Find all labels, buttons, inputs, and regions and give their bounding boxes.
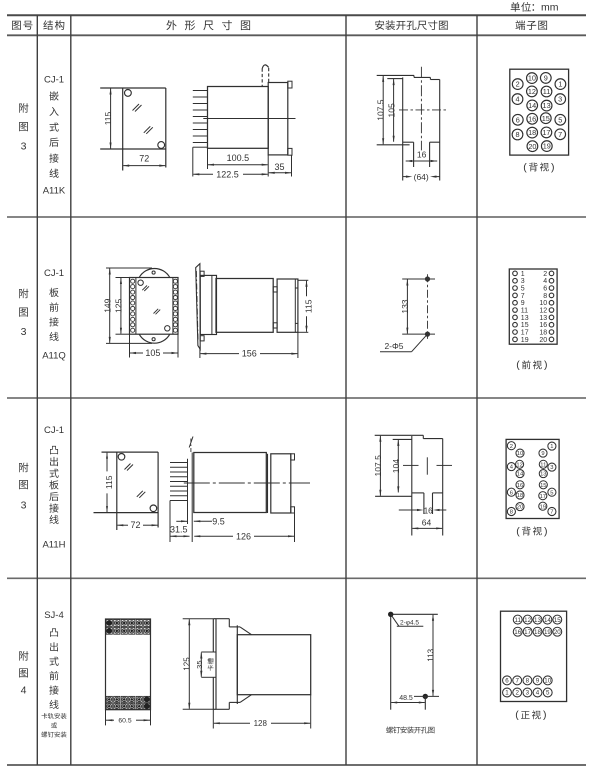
svg-text:A11Q: A11Q xyxy=(42,350,66,361)
svg-text:2: 2 xyxy=(510,444,513,450)
svg-text:8: 8 xyxy=(515,130,519,139)
svg-text:): ) xyxy=(544,359,548,371)
svg-text:SJ-4: SJ-4 xyxy=(44,610,64,621)
svg-text:1: 1 xyxy=(521,271,525,278)
svg-text:10: 10 xyxy=(517,451,523,457)
svg-text:17: 17 xyxy=(542,128,550,137)
svg-text:2-Φ5: 2-Φ5 xyxy=(384,341,403,351)
svg-text:113: 113 xyxy=(427,648,436,661)
svg-text:12: 12 xyxy=(528,87,536,96)
svg-text:125: 125 xyxy=(114,298,124,312)
svg-text:): ) xyxy=(551,161,555,173)
svg-text:3: 3 xyxy=(521,278,525,285)
svg-text:16: 16 xyxy=(514,629,521,636)
svg-text:18: 18 xyxy=(534,629,541,636)
svg-text:7: 7 xyxy=(515,678,519,685)
svg-text:156: 156 xyxy=(242,349,257,359)
svg-text:2: 2 xyxy=(515,690,519,697)
svg-text:11: 11 xyxy=(514,617,521,624)
svg-text:11: 11 xyxy=(543,87,551,96)
svg-text:(: ( xyxy=(523,161,527,173)
svg-text:125: 125 xyxy=(183,657,192,671)
svg-text:(: ( xyxy=(516,359,520,371)
svg-text:11: 11 xyxy=(540,462,546,468)
svg-text:): ) xyxy=(543,709,547,721)
svg-text:12: 12 xyxy=(539,308,547,315)
svg-text:19: 19 xyxy=(544,629,551,636)
svg-text:10: 10 xyxy=(539,300,547,307)
svg-text:1: 1 xyxy=(550,444,553,450)
svg-text:6: 6 xyxy=(510,490,513,496)
svg-text:CJ-1: CJ-1 xyxy=(44,75,64,86)
svg-text:104: 104 xyxy=(391,459,401,473)
svg-text:72: 72 xyxy=(139,153,149,163)
svg-text:(: ( xyxy=(516,525,520,537)
svg-text:13: 13 xyxy=(540,472,546,478)
svg-text:13: 13 xyxy=(521,315,529,322)
svg-text:17: 17 xyxy=(540,494,546,500)
svg-text:107.5: 107.5 xyxy=(373,455,383,477)
svg-text:7: 7 xyxy=(558,130,562,139)
svg-text:115: 115 xyxy=(103,111,113,125)
svg-text:5: 5 xyxy=(558,115,562,124)
svg-text:60.5: 60.5 xyxy=(118,718,131,725)
svg-text:15: 15 xyxy=(521,322,529,329)
svg-text:2-φ4.5: 2-φ4.5 xyxy=(400,620,419,627)
svg-text:105: 105 xyxy=(386,103,396,117)
svg-text:1: 1 xyxy=(558,80,562,89)
svg-text:10: 10 xyxy=(528,74,536,83)
svg-text:19: 19 xyxy=(521,337,529,344)
svg-text:A11H: A11H xyxy=(42,539,65,550)
svg-text:9: 9 xyxy=(536,678,540,685)
svg-text:16: 16 xyxy=(528,114,536,123)
svg-text:(: ( xyxy=(515,709,519,721)
svg-text:107.5: 107.5 xyxy=(376,99,386,121)
svg-text:4: 4 xyxy=(536,690,540,697)
svg-text:3: 3 xyxy=(21,141,27,153)
svg-text:19: 19 xyxy=(543,142,551,151)
svg-text:16: 16 xyxy=(539,322,547,329)
svg-text:20: 20 xyxy=(528,142,536,151)
svg-text:4: 4 xyxy=(543,278,547,285)
svg-text:13: 13 xyxy=(543,101,551,110)
svg-text:18: 18 xyxy=(539,330,547,337)
svg-text:A11K: A11K xyxy=(43,186,66,197)
svg-text:35: 35 xyxy=(274,162,284,172)
svg-text:31.5: 31.5 xyxy=(170,525,188,535)
svg-text:8: 8 xyxy=(510,510,513,516)
svg-text:18: 18 xyxy=(517,493,523,499)
svg-text:15: 15 xyxy=(540,483,546,489)
svg-text:122.5: 122.5 xyxy=(216,169,239,179)
svg-text:mm: mm xyxy=(541,2,559,14)
svg-text:CJ-1: CJ-1 xyxy=(44,425,64,436)
svg-text:2: 2 xyxy=(543,271,547,278)
svg-text:1: 1 xyxy=(505,690,509,697)
svg-text:14: 14 xyxy=(528,101,536,110)
svg-text:3: 3 xyxy=(550,465,553,471)
svg-text:149: 149 xyxy=(102,298,112,312)
svg-text:15: 15 xyxy=(542,114,550,123)
svg-text:15: 15 xyxy=(554,617,561,624)
svg-text:17: 17 xyxy=(524,629,531,636)
svg-text:35: 35 xyxy=(195,660,204,668)
svg-text:100.5: 100.5 xyxy=(227,153,250,163)
svg-text:9: 9 xyxy=(541,451,544,457)
svg-text:9.5: 9.5 xyxy=(212,516,225,526)
svg-text:115: 115 xyxy=(304,299,314,313)
svg-text:4: 4 xyxy=(515,95,519,104)
svg-text:6: 6 xyxy=(505,678,509,685)
svg-text:8: 8 xyxy=(543,293,547,300)
svg-text:5: 5 xyxy=(546,690,550,697)
svg-text:(64): (64) xyxy=(414,172,429,182)
svg-text:64: 64 xyxy=(422,518,432,528)
svg-text:14: 14 xyxy=(517,472,524,478)
svg-text:6: 6 xyxy=(516,115,520,124)
svg-text:20: 20 xyxy=(539,337,547,344)
svg-text:6: 6 xyxy=(543,286,547,293)
svg-text:3: 3 xyxy=(21,326,27,338)
svg-text:105: 105 xyxy=(145,348,160,358)
svg-text:): ) xyxy=(544,525,548,537)
svg-text:3: 3 xyxy=(526,690,530,697)
svg-text:48.5: 48.5 xyxy=(399,695,413,702)
svg-text:20: 20 xyxy=(517,505,523,511)
svg-text:9: 9 xyxy=(521,300,525,307)
svg-text:128: 128 xyxy=(254,719,268,728)
svg-text:2: 2 xyxy=(516,80,520,89)
svg-text:11: 11 xyxy=(521,308,528,315)
svg-text:7: 7 xyxy=(550,510,553,516)
svg-text:13: 13 xyxy=(534,617,541,624)
svg-text:5: 5 xyxy=(521,286,525,293)
svg-text:16: 16 xyxy=(417,150,427,160)
svg-text:18: 18 xyxy=(528,128,536,137)
svg-text:7: 7 xyxy=(521,293,525,300)
svg-text:14: 14 xyxy=(544,617,551,624)
svg-text:3: 3 xyxy=(21,500,27,512)
svg-text:4: 4 xyxy=(21,685,27,697)
svg-text:16: 16 xyxy=(424,506,433,515)
svg-text:133: 133 xyxy=(400,299,410,313)
svg-text:16: 16 xyxy=(517,483,523,489)
svg-text:CJ-1: CJ-1 xyxy=(44,268,64,279)
svg-text:12: 12 xyxy=(516,462,522,468)
svg-text:9: 9 xyxy=(544,74,548,83)
svg-text:126: 126 xyxy=(236,531,251,541)
svg-text:17: 17 xyxy=(521,330,529,337)
svg-text:20: 20 xyxy=(554,629,561,636)
svg-text:12: 12 xyxy=(524,617,531,624)
svg-text:13: 13 xyxy=(539,315,547,322)
svg-text:19: 19 xyxy=(540,504,546,510)
svg-text:5: 5 xyxy=(550,490,553,496)
svg-text:115: 115 xyxy=(104,475,114,489)
svg-text:8: 8 xyxy=(526,678,530,685)
svg-text:10: 10 xyxy=(544,678,551,685)
svg-text:3: 3 xyxy=(558,95,562,104)
svg-text:72: 72 xyxy=(130,520,140,530)
